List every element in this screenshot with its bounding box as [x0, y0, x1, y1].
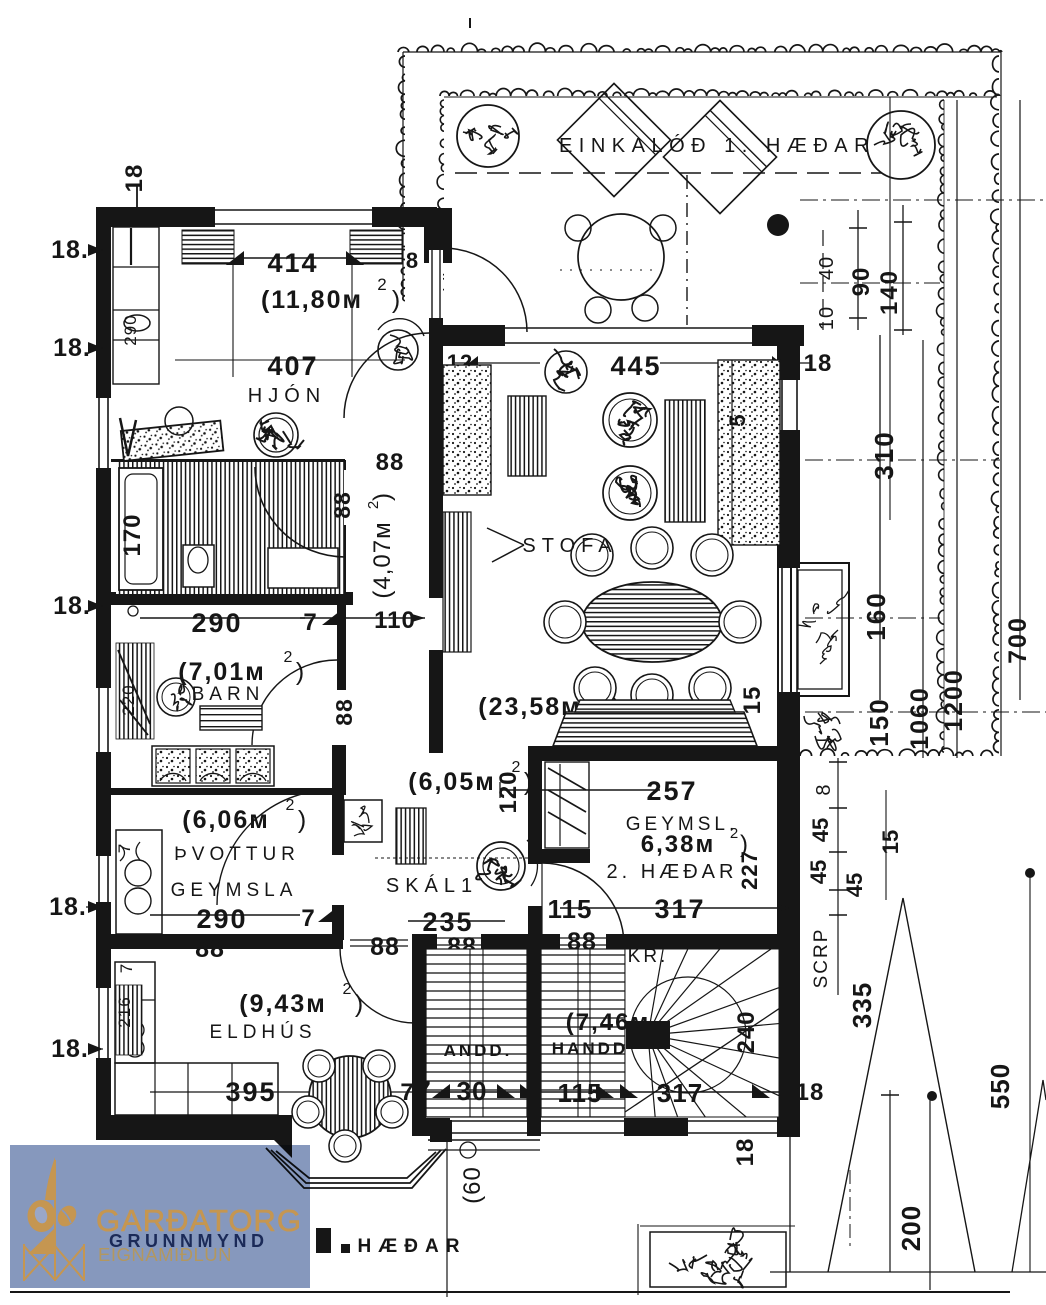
svg-text:18.: 18. — [51, 1035, 89, 1063]
svg-text:2: 2 — [286, 797, 295, 814]
svg-text:): ) — [392, 286, 400, 314]
svg-text:2: 2 — [365, 501, 382, 509]
svg-text:(7,01м: (7,01м — [178, 658, 265, 686]
svg-text:2: 2 — [343, 981, 352, 998]
svg-text:18: 18 — [796, 1079, 825, 1106]
svg-text:): ) — [369, 493, 396, 501]
svg-text:240: 240 — [733, 1010, 760, 1053]
svg-text:550: 550 — [985, 1063, 1015, 1109]
svg-text:15: 15 — [739, 686, 766, 715]
svg-text:ANDD.: ANDD. — [444, 1041, 513, 1060]
svg-text:5: 5 — [725, 413, 750, 426]
svg-text:BARN: BARN — [192, 684, 265, 705]
svg-text:18.: 18. — [53, 592, 91, 620]
svg-text:HJÓN: HJÓN — [248, 384, 326, 407]
svg-text:ELDHÚS: ELDHÚS — [209, 1021, 316, 1043]
svg-text:310: 310 — [869, 430, 899, 479]
svg-text:200: 200 — [896, 1205, 926, 1251]
svg-text:395: 395 — [225, 1077, 276, 1107]
svg-text:290: 290 — [121, 314, 140, 345]
svg-text:18: 18 — [121, 164, 148, 193]
svg-text:290: 290 — [191, 608, 242, 638]
svg-text:414: 414 — [267, 248, 318, 278]
svg-text:18.: 18. — [49, 893, 87, 921]
svg-text:140: 140 — [876, 269, 903, 315]
svg-text:HÆÐAR: HÆÐAR — [358, 1236, 467, 1257]
svg-text:317: 317 — [654, 894, 705, 924]
svg-text:2. HÆÐAR: 2. HÆÐAR — [607, 861, 738, 883]
svg-text:2: 2 — [730, 825, 738, 842]
svg-text:40: 40 — [816, 256, 838, 280]
svg-text:(60: (60 — [459, 1166, 486, 1204]
svg-text:8: 8 — [813, 784, 835, 795]
svg-text:45: 45 — [808, 818, 833, 842]
svg-text:150: 150 — [864, 697, 894, 746]
svg-text:7: 7 — [117, 963, 136, 973]
svg-text:18.: 18. — [51, 236, 89, 264]
svg-text:160: 160 — [861, 591, 891, 640]
svg-text:HANDD: HANDD — [552, 1039, 628, 1058]
svg-text:): ) — [355, 990, 363, 1018]
svg-text:18.: 18. — [53, 334, 91, 362]
svg-text:2: 2 — [284, 649, 293, 666]
svg-text:1200: 1200 — [940, 668, 968, 732]
svg-text:ÞVOTTUR: ÞVOTTUR — [174, 844, 300, 865]
svg-text:): ) — [296, 658, 304, 686]
svg-text:KR.: KR. — [628, 946, 669, 967]
svg-text:90: 90 — [848, 266, 875, 297]
svg-text:30: 30 — [457, 1076, 488, 1106]
svg-text:(9,43м: (9,43м — [239, 990, 326, 1018]
svg-text:216: 216 — [115, 996, 134, 1027]
svg-text:88: 88 — [370, 933, 400, 961]
svg-text:7: 7 — [303, 609, 316, 636]
svg-text:120: 120 — [495, 770, 522, 813]
svg-text:7: 7 — [115, 843, 134, 853]
svg-text:335: 335 — [847, 982, 877, 1028]
svg-text:7: 7 — [417, 1077, 430, 1104]
svg-text:(11,80м: (11,80м — [261, 286, 363, 314]
svg-text:2: 2 — [377, 275, 386, 294]
svg-text:18: 18 — [732, 1138, 759, 1167]
svg-text:SKÁL1: SKÁL1 — [386, 874, 478, 897]
svg-text:18: 18 — [804, 350, 833, 377]
svg-text:257: 257 — [646, 776, 697, 806]
svg-text:88: 88 — [329, 491, 355, 519]
svg-text:407: 407 — [267, 351, 318, 381]
svg-text:(4,07м: (4,07м — [369, 521, 396, 598]
svg-text:15: 15 — [878, 830, 903, 854]
svg-text:SCRP: SCRP — [811, 928, 832, 989]
svg-text:10: 10 — [816, 306, 838, 330]
svg-text:(6,06м: (6,06м — [182, 806, 269, 834]
svg-text:235: 235 — [422, 907, 473, 937]
svg-text:6,38м: 6,38м — [641, 831, 715, 858]
svg-text:1060: 1060 — [906, 686, 934, 750]
svg-text:170: 170 — [119, 513, 146, 556]
svg-text:7: 7 — [301, 905, 314, 932]
svg-text:317: 317 — [657, 1078, 703, 1108]
svg-text:45: 45 — [842, 873, 867, 897]
svg-text:(7,46м: (7,46м — [566, 1009, 650, 1036]
svg-text:445: 445 — [610, 351, 661, 381]
svg-text:GRUNNMYND: GRUNNMYND — [109, 1231, 269, 1251]
svg-text:220: 220 — [119, 684, 138, 715]
svg-text:115: 115 — [548, 894, 593, 924]
svg-text:110: 110 — [374, 607, 416, 634]
svg-text:88: 88 — [376, 449, 405, 476]
svg-text:): ) — [524, 768, 532, 796]
svg-text:STOFA: STOFA — [522, 535, 617, 557]
svg-text:88: 88 — [195, 935, 225, 963]
svg-text:88: 88 — [331, 698, 357, 726]
svg-text:(6,05м: (6,05м — [408, 768, 495, 796]
svg-text:): ) — [298, 806, 306, 834]
svg-text:290: 290 — [196, 904, 247, 934]
svg-text:EINKALÓÐ 1. HÆÐAR: EINKALÓÐ 1. HÆÐAR — [559, 134, 875, 157]
svg-text:227: 227 — [737, 850, 762, 890]
svg-text:700: 700 — [1004, 616, 1032, 664]
svg-text:45: 45 — [806, 860, 831, 884]
svg-text:115: 115 — [558, 1078, 603, 1108]
svg-text:GEYMSLA: GEYMSLA — [171, 880, 298, 901]
svg-text:8: 8 — [406, 248, 418, 273]
